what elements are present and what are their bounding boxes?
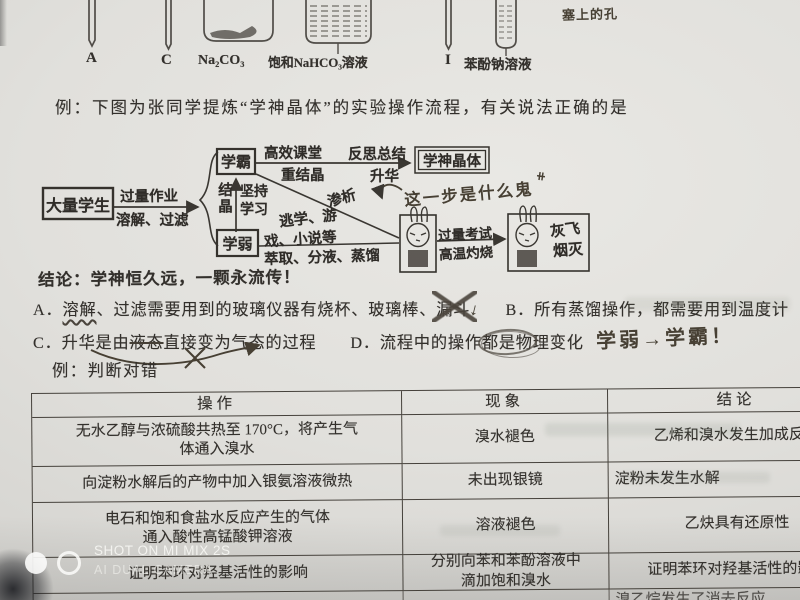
watermark-line2: AI DUAL CAMERA [94,563,213,577]
flowchart-start-box: 大量学生 [43,188,113,219]
tube-i-drawing [446,0,451,49]
flowchart-arrow2-bottom-label: 重结晶 [281,164,325,185]
bleed-through-artifact [625,297,790,311]
scribbled-all-are: 都是物 [482,329,533,353]
flowchart-arrow1-top-label: 过量作业 [120,184,178,206]
bleed-through-artifact [440,525,560,536]
solid-in-beaker [210,26,257,39]
table-cell-r2-phenomenon: 未出现银镜 [403,462,609,500]
option-a-mid: 、过滤需要用到的玻璃仪器有烧杯、玻璃棒、 [96,301,436,319]
watermark-filled-circle [25,552,47,574]
apparatus-drawings [0,0,800,72]
rabbit-1-body [408,250,428,267]
table-cell-r1-conclusion: 乙烯和溴水发生加成反应 [608,411,800,462]
tube-a-drawing [89,0,95,46]
liquid-lines-test-tube [499,6,513,38]
handwritten-xueruo-to-xueba: 学弱→学霸！ [595,319,734,354]
table-cell-r1-phenomenon: 溴水褪色 [402,413,608,464]
handwritten-hook-arrow [381,185,402,198]
watermark-ring-circle [57,551,81,575]
table-header-operation: 操作 [32,391,402,418]
liquid-lines-bottle [310,6,367,36]
option-a-wavy-underlined: 溶解 [62,301,96,319]
flowchart-xuoruo-box: 学弱 [217,230,258,256]
apparatus-label-nahco3: 饱和NaHCO₃溶液 [268,52,367,71]
bleed-through-artifact [620,472,770,483]
table-cell-r3-conclusion: 乙炔具有还原性 [609,496,800,553]
flowchart-xueba-box: 学霸 [217,149,255,174]
conclusion-line: 结论：学神恒久远，一颗永流传！ [38,264,301,291]
flowchart-arrow3-top-label: 反思总结 [348,143,406,164]
table-cell-r2-operation: 向淀粉水解后的产物中加入银氨溶液微热 [33,464,403,503]
rabbit-cartoon-2 [516,206,538,247]
apparatus-label-c: C [161,52,172,69]
table-cell-r5-phenomenon [404,589,610,600]
handwritten-annotation-mark: ⧺ [535,168,547,184]
crossed-out-funnel: 漏斗 [436,296,470,320]
table-cell-r4-phenomenon: 分别向苯和苯酚溶液中 滴加饱和溴水 [403,553,609,591]
rabbit-2-body [517,250,537,267]
option-d-head: D．流程中的操作 [350,334,481,352]
table-cell-r1-operation: 无水乙醇与浓硫酸共热至 170°C，将产生气 体通入溴水 [32,415,402,467]
flowchart-arrow2-top-label: 高效课堂 [264,142,322,163]
flowchart-arrow3-bottom-label: 升华 [370,165,399,186]
flowchart-end-box: 学神晶体 [415,147,489,173]
table-cell-r5-conclusion: 溴乙烷发生了消去反应 [610,587,800,600]
handwritten-x-mark [185,348,205,368]
flowchart-branch-label: 结晶 [214,182,235,226]
example2-prompt: 例：判断对错 [52,357,159,381]
flowchart-exam-bottom-label: 高温灼烧 [439,241,494,264]
apparatus-label-a: A [86,50,97,67]
example1-prompt: 例：下图为张同学提炼“学神晶体”的实验操作流程，有关说法正确的是 [55,94,629,118]
test-tube-drawing [496,0,516,48]
rabbit-cartoon-1 [407,207,429,247]
watermark-line1: SHOT ON MI MIX 2S [94,543,231,558]
table-header-phenomenon: 现象 [402,389,608,415]
apparatus-label-phenol: 苯酚钠溶液 [464,53,532,73]
flowchart-ash-text-2: 烟灭 [552,238,583,261]
option-a-head: A． [33,301,62,319]
apparatus-label-i: I [445,52,451,69]
table-header-conclusion: 结论 [608,387,800,413]
handwritten-stopper-note: 塞上的孔 [562,3,618,23]
flowchart-persist-label: 坚持学习 [240,184,273,219]
worksheet-photo: A C Na₂CO₃ 饱和NaHCO₃溶液 I 苯酚钠溶液 塞上的孔 例：下图为… [0,0,800,600]
table-cell-r4-conclusion: 证明苯环对羟基活性的影响 [609,551,800,589]
tube-c-drawing [166,0,171,49]
flowchart-arrow1-bottom-label: 溶解、过滤 [116,209,189,230]
apparatus-label-na2co3: Na₂CO₃ [198,53,245,69]
table-cell-r4-operation: 证明苯环对羟基活性的影响 [33,555,403,594]
bleed-through-artifact [545,423,740,436]
